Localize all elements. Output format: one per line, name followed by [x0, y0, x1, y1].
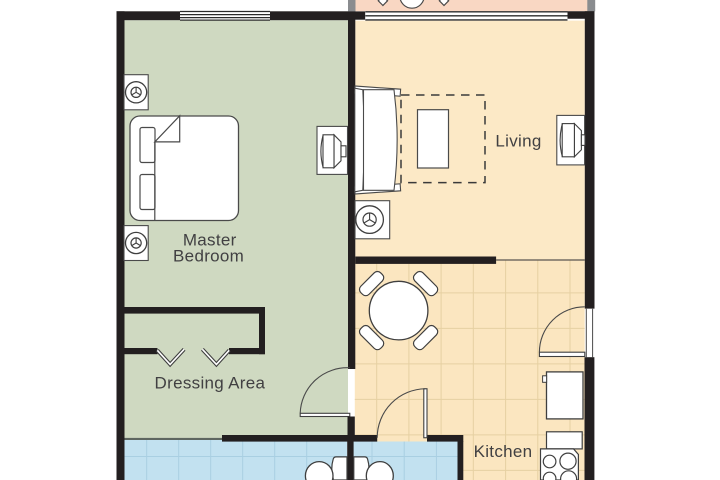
- svg-text:Dressing Area: Dressing Area: [155, 374, 266, 393]
- svg-text:Living: Living: [495, 131, 541, 150]
- svg-text:Kitchen: Kitchen: [474, 442, 533, 461]
- svg-text:Bedroom: Bedroom: [173, 246, 244, 265]
